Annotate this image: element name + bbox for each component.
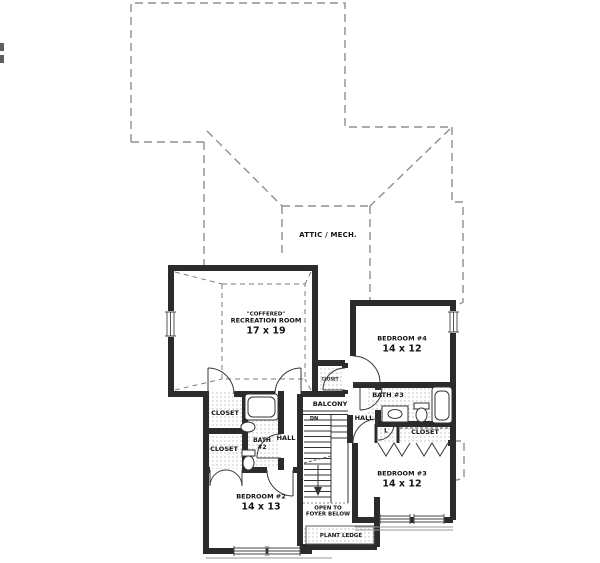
label-linen-closet: L — [384, 427, 388, 434]
floor-plan-canvas — [0, 0, 600, 563]
sink-icon — [382, 406, 408, 422]
label-closet-hall: CLOSET — [321, 378, 338, 383]
label-balcony: BALCONY — [313, 401, 348, 409]
window-bedroom3-bottom-right — [414, 514, 444, 524]
toilet-icon — [242, 450, 255, 470]
floor-plan: ATTIC / MECH. "COFFERED" RECREATION ROOM… — [0, 0, 600, 563]
sink-icon — [241, 422, 255, 432]
label-recreation-room: "COFFERED" RECREATION ROOM 17 x 19 — [231, 311, 302, 336]
window-bedroom3-bottom-left — [380, 514, 410, 524]
label-closet-upper: CLOSET — [211, 410, 239, 418]
label-hall-right: HALL — [355, 415, 374, 423]
label-hall-left: HALL — [277, 435, 296, 443]
window-bedroom2-bottom-right — [268, 546, 300, 556]
label-bedroom-3: BEDROOM #3 14 x 12 — [377, 471, 427, 490]
label-bath-2: BATH #2 — [253, 437, 271, 451]
bathtub-icon — [432, 387, 452, 423]
label-bath-3: BATH #3 — [372, 392, 404, 400]
bifold-doors — [378, 443, 448, 456]
label-closet-right: CLOSET — [411, 429, 439, 437]
bathtub-icon — [245, 394, 278, 420]
label-bedroom-2: BEDROOM #2 14 x 13 — [236, 494, 286, 513]
scan-artifacts — [0, 43, 4, 63]
window-bedroom4-right — [448, 311, 459, 333]
window-recreation-left — [165, 311, 176, 337]
label-open-to-foyer: OPEN TO FOYER BELOW — [306, 506, 350, 519]
window-bedroom2-bottom-left — [234, 546, 266, 556]
label-plant-ledge: PLANT LEDGE — [320, 533, 362, 539]
balcony-railing — [303, 411, 348, 415]
label-bedroom-4: BEDROOM #4 14 x 12 — [377, 336, 427, 355]
label-attic-mech: ATTIC / MECH. — [299, 231, 357, 239]
label-closet-lower: CLOSET — [210, 446, 238, 454]
label-stairs-dn: DN — [310, 417, 318, 423]
staircase — [303, 411, 348, 503]
